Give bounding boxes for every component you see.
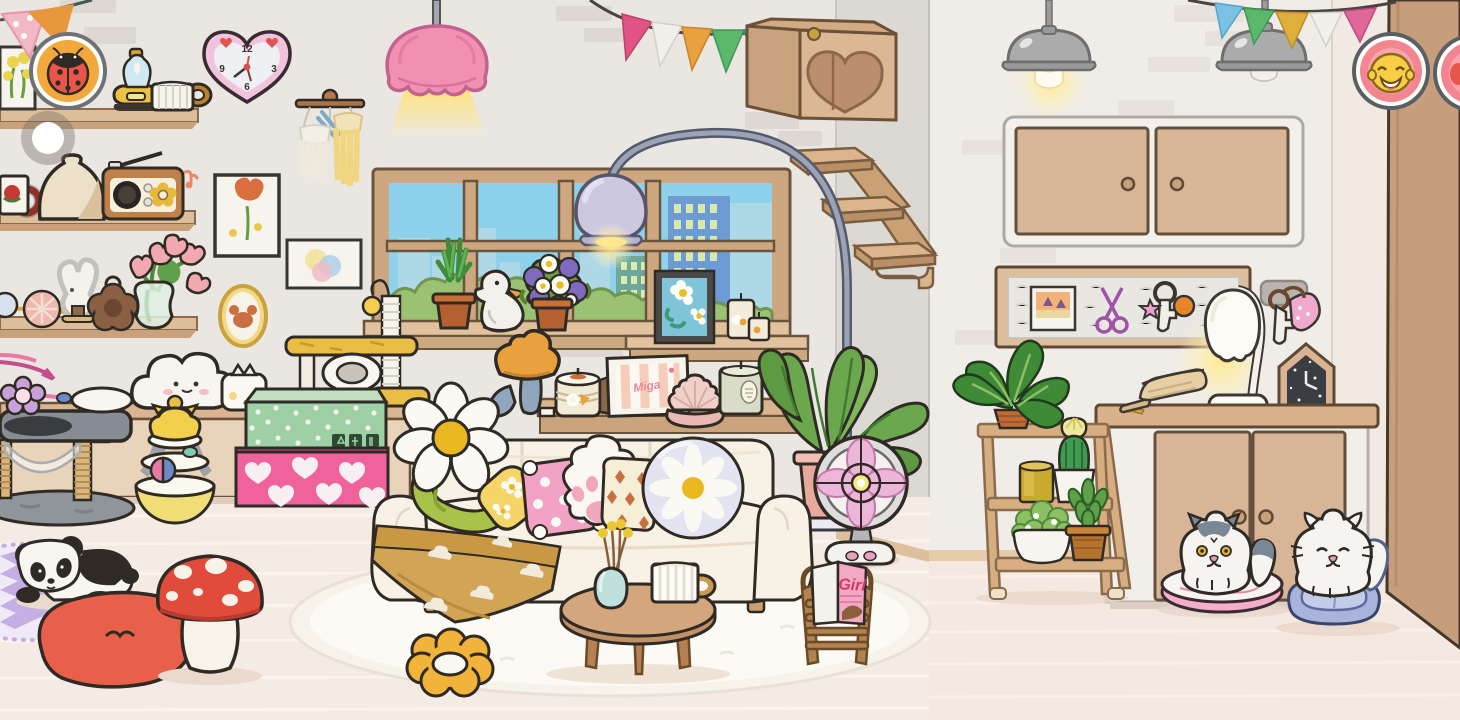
svg-text:12: 12 [241,44,253,55]
svg-text:9: 9 [219,64,225,75]
svg-text:3: 3 [271,64,277,75]
svg-text:6: 6 [244,82,250,93]
svg-text:Girl: Girl [838,576,867,594]
